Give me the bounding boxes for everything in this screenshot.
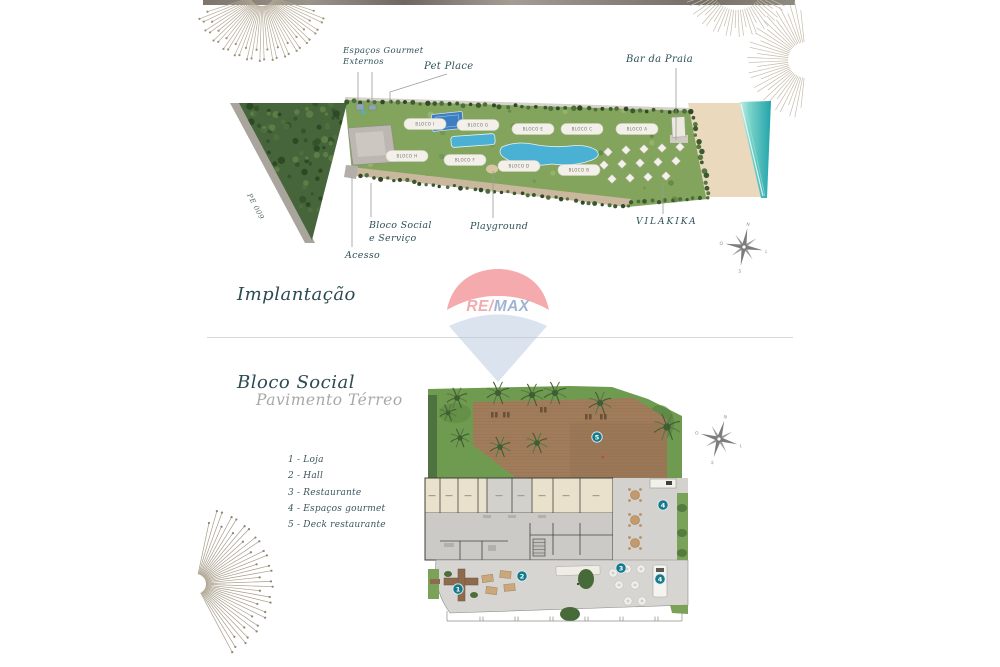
marker-dot	[602, 456, 605, 459]
service-rooms	[487, 478, 532, 513]
gourmet-pool	[361, 110, 365, 114]
block-pill: BLOCO C	[561, 124, 603, 135]
callout-bloco-social: Bloco Social e Serviço	[369, 220, 432, 245]
block-label: BLOCO H	[397, 154, 418, 159]
bar-da-praia-building	[671, 117, 685, 138]
bloco-social-roof	[355, 131, 386, 157]
garden-pocket	[670, 605, 688, 614]
compass-e: L	[739, 443, 744, 450]
page: BLOCO I BLOCO G BLOCO E BLOCO C BLOCO A …	[0, 0, 1000, 667]
planter-tree	[560, 607, 580, 621]
callout-bar-da-praia: Bar da Praia	[626, 53, 693, 66]
stair	[533, 539, 545, 556]
remax-watermark-logo: RE/MAX	[443, 266, 553, 386]
legend-item: 2 - Hall	[288, 471, 386, 481]
playground-area	[486, 165, 498, 174]
badge-3-restaurante: 3	[616, 563, 626, 573]
svg-text:3: 3	[619, 564, 624, 572]
callout-text: Pet Place	[424, 61, 474, 72]
compass-rose-icon: N L S O	[716, 219, 772, 275]
svg-text:4: 4	[658, 575, 663, 583]
block-label: BLOCO F	[455, 158, 476, 163]
palm-fan-icon	[198, 510, 274, 653]
floorplan-render: 5	[420, 383, 720, 638]
block-label: BLOCO B	[569, 168, 590, 173]
legend-item: 3 - Restaurante	[288, 488, 386, 498]
block-pill: BLOCO H	[386, 151, 428, 162]
callout-pet-place: Pet Place	[424, 60, 474, 73]
badge-1-loja: 1	[453, 584, 463, 594]
block-pill: BLOCO I	[404, 119, 446, 130]
callout-vilakika: VILAKIKA	[636, 217, 698, 229]
badge-5-deck-restaurante: 5	[592, 432, 602, 442]
counter	[650, 479, 676, 488]
block-pill: BLOCO A	[616, 124, 658, 135]
badge-4-espacos-gourmet: 4	[658, 500, 668, 510]
compass-rose-icon: N L S O	[691, 411, 747, 467]
planter-tree	[578, 569, 594, 589]
compass-s: S	[710, 460, 715, 467]
callout-text: VILAKIKA	[636, 217, 698, 227]
block-label: BLOCO I	[415, 122, 434, 127]
svg-text:4: 4	[661, 501, 666, 509]
block-pill: BLOCO B	[558, 165, 600, 176]
block-pill: BLOCO F	[444, 155, 486, 166]
block-pill: BLOCO D	[498, 161, 540, 172]
gourmet-structure	[369, 105, 376, 110]
balloon-bottom	[449, 315, 547, 383]
compass-w: O	[694, 430, 699, 437]
badge-2-hall: 2	[517, 571, 527, 581]
callout-acesso: Acesso	[345, 250, 380, 263]
callout-text: Espaços Gourmet	[343, 46, 423, 57]
long-table	[556, 565, 600, 576]
interior-hall	[425, 513, 613, 560]
remax-wordmark: RE/MAX	[466, 298, 530, 315]
block-label: BLOCO E	[523, 127, 544, 132]
compass-e: L	[765, 249, 769, 255]
callout-text: Playground	[470, 221, 528, 232]
compass-s: S	[738, 268, 742, 274]
callout-text: e Serviço	[369, 233, 432, 246]
legend-item: 1 - Loja	[288, 455, 386, 465]
callout-espacos-gourmet: Espaços Gourmet Externos	[343, 46, 423, 68]
section-subtitle-pavimento-terreo: Pavimento Térreo	[256, 391, 403, 409]
block-label: BLOCO C	[572, 127, 593, 132]
block-label: BLOCO D	[508, 164, 529, 169]
svg-text:5: 5	[595, 433, 600, 441]
wood-step	[430, 579, 440, 584]
compass-w: O	[719, 241, 724, 248]
svg-text:2: 2	[520, 572, 525, 580]
access-drive	[344, 165, 358, 179]
block-pill: BLOCO G	[457, 120, 499, 131]
svg-text:1: 1	[456, 585, 461, 593]
callout-text: Bar da Praia	[626, 54, 693, 65]
compass-n: N	[723, 414, 728, 421]
hedge	[428, 395, 437, 478]
floorplan-legend: 1 - Loja 2 - Hall 3 - Restaurante 4 - Es…	[288, 455, 386, 536]
callout-text: Acesso	[345, 250, 380, 261]
badge-4-espacos-gourmet: 4	[655, 574, 665, 584]
gourmet-terrace	[613, 478, 688, 560]
legend-item: 5 - Deck restaurante	[288, 520, 386, 530]
callout-text: Bloco Social	[369, 220, 432, 233]
gourmet-structure	[356, 104, 364, 110]
block-label: BLOCO G	[467, 123, 488, 128]
callout-text: Externos	[343, 57, 423, 68]
palm-fan-icon	[198, 0, 324, 62]
block-pill: BLOCO E	[512, 124, 554, 135]
section-title-bloco-social: Bloco Social	[237, 372, 355, 393]
callout-playground: Playground	[470, 221, 528, 234]
block-label: BLOCO A	[627, 127, 648, 132]
compass-n: N	[746, 222, 750, 228]
section-title-implantacao: Implantação	[237, 284, 356, 305]
road-label: PE 009	[245, 191, 266, 221]
legend-item: 4 - Espaços gourmet	[288, 504, 386, 514]
